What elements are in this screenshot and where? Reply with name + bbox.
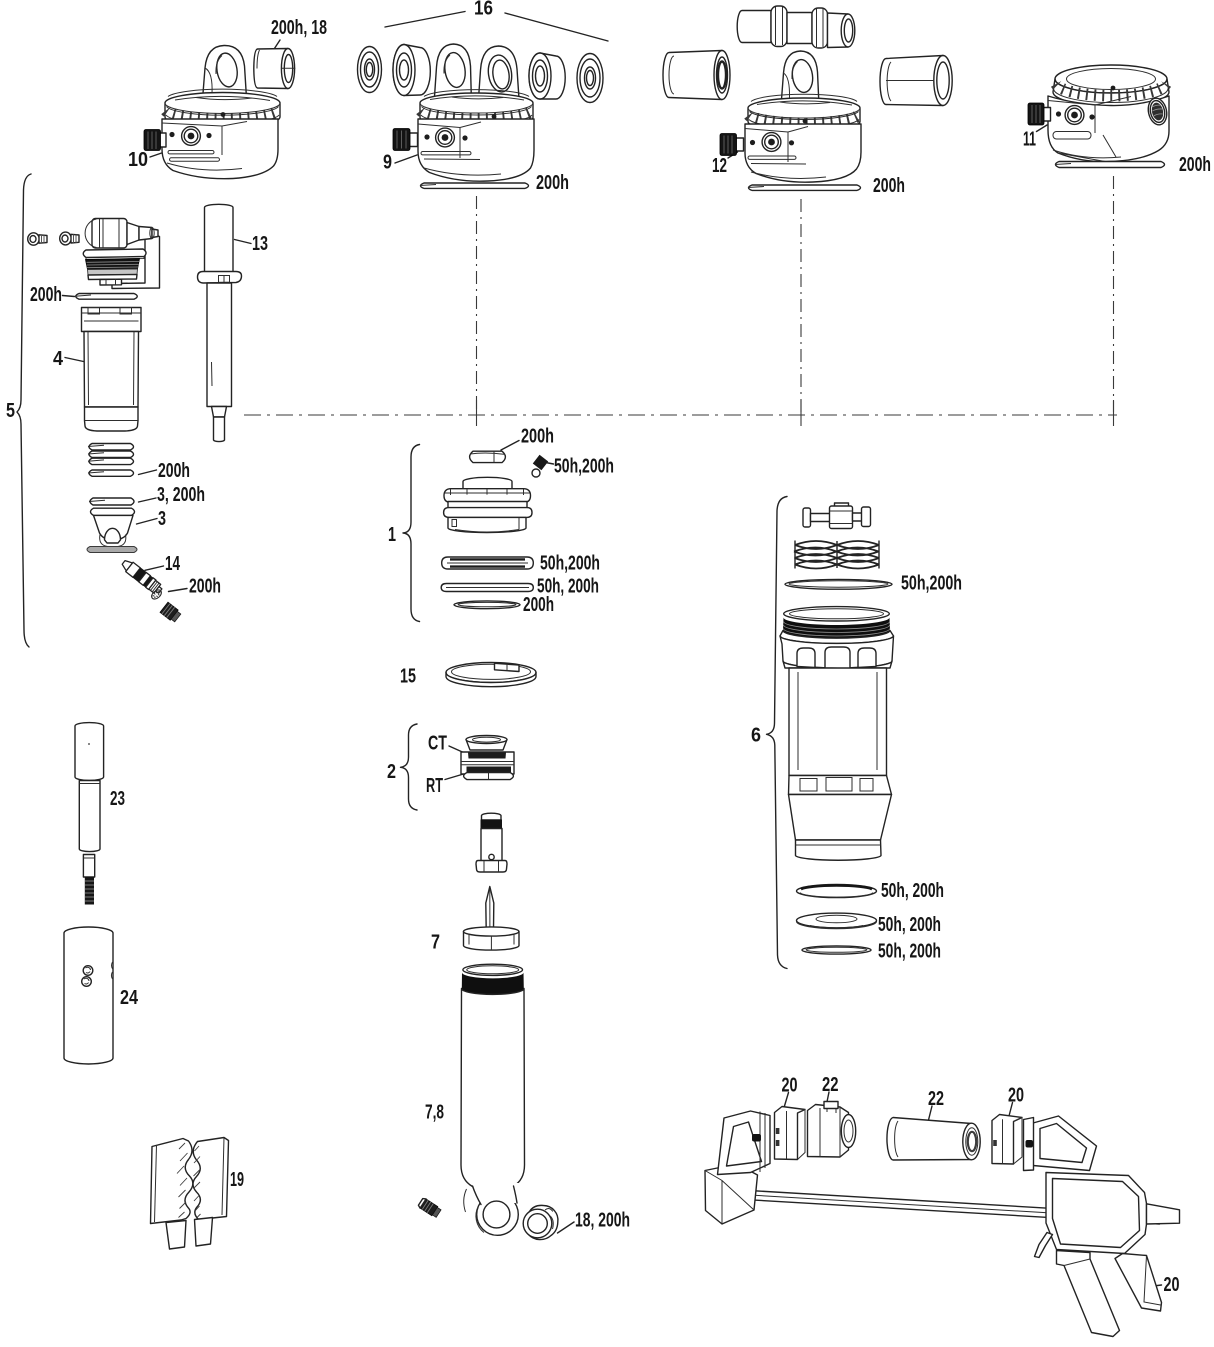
svg-text:200h: 200h — [521, 426, 554, 448]
svg-text:4: 4 — [53, 348, 64, 370]
svg-text:200h: 200h — [873, 175, 905, 197]
svg-text:200h, 18: 200h, 18 — [271, 17, 327, 39]
svg-text:2: 2 — [387, 761, 396, 783]
svg-text:22: 22 — [822, 1074, 839, 1096]
svg-text:200h: 200h — [1179, 154, 1211, 176]
svg-text:50h, 200h: 50h, 200h — [881, 880, 944, 902]
svg-text:50h, 200h: 50h, 200h — [878, 914, 941, 936]
svg-text:3: 3 — [158, 508, 166, 530]
svg-text:24: 24 — [120, 987, 139, 1009]
svg-text:19: 19 — [230, 1169, 244, 1191]
svg-text:200h: 200h — [30, 284, 62, 306]
svg-text:18, 200h: 18, 200h — [575, 1210, 630, 1232]
svg-text:7,8: 7,8 — [425, 1102, 444, 1124]
svg-text:50h,200h: 50h,200h — [901, 573, 962, 595]
svg-text:20: 20 — [1008, 1085, 1024, 1107]
svg-text:14: 14 — [165, 553, 181, 575]
svg-text:7: 7 — [431, 932, 440, 954]
svg-text:15: 15 — [400, 666, 416, 688]
svg-text:20: 20 — [1164, 1274, 1180, 1296]
svg-text:10: 10 — [128, 149, 148, 171]
svg-text:RT: RT — [426, 775, 443, 797]
svg-text:1: 1 — [388, 524, 396, 546]
svg-text:13: 13 — [252, 233, 268, 255]
svg-text:3, 200h: 3, 200h — [157, 484, 205, 506]
svg-text:50h, 200h: 50h, 200h — [878, 941, 941, 963]
svg-text:11: 11 — [1023, 129, 1036, 151]
svg-text:50h,200h: 50h,200h — [540, 553, 600, 575]
svg-text:20: 20 — [782, 1075, 798, 1097]
svg-text:22: 22 — [928, 1088, 944, 1110]
svg-text:23: 23 — [110, 788, 125, 810]
svg-text:12: 12 — [712, 155, 727, 177]
svg-text:6: 6 — [751, 725, 761, 747]
svg-text:16: 16 — [474, 0, 493, 20]
svg-text:200h: 200h — [523, 594, 554, 616]
svg-text:200h: 200h — [158, 460, 190, 482]
svg-text:200h: 200h — [189, 576, 221, 598]
svg-text:CT: CT — [428, 733, 447, 755]
svg-text:5: 5 — [6, 400, 15, 422]
svg-text:200h: 200h — [536, 172, 569, 194]
svg-text:50h,200h: 50h,200h — [554, 456, 614, 478]
svg-text:9: 9 — [383, 152, 392, 174]
